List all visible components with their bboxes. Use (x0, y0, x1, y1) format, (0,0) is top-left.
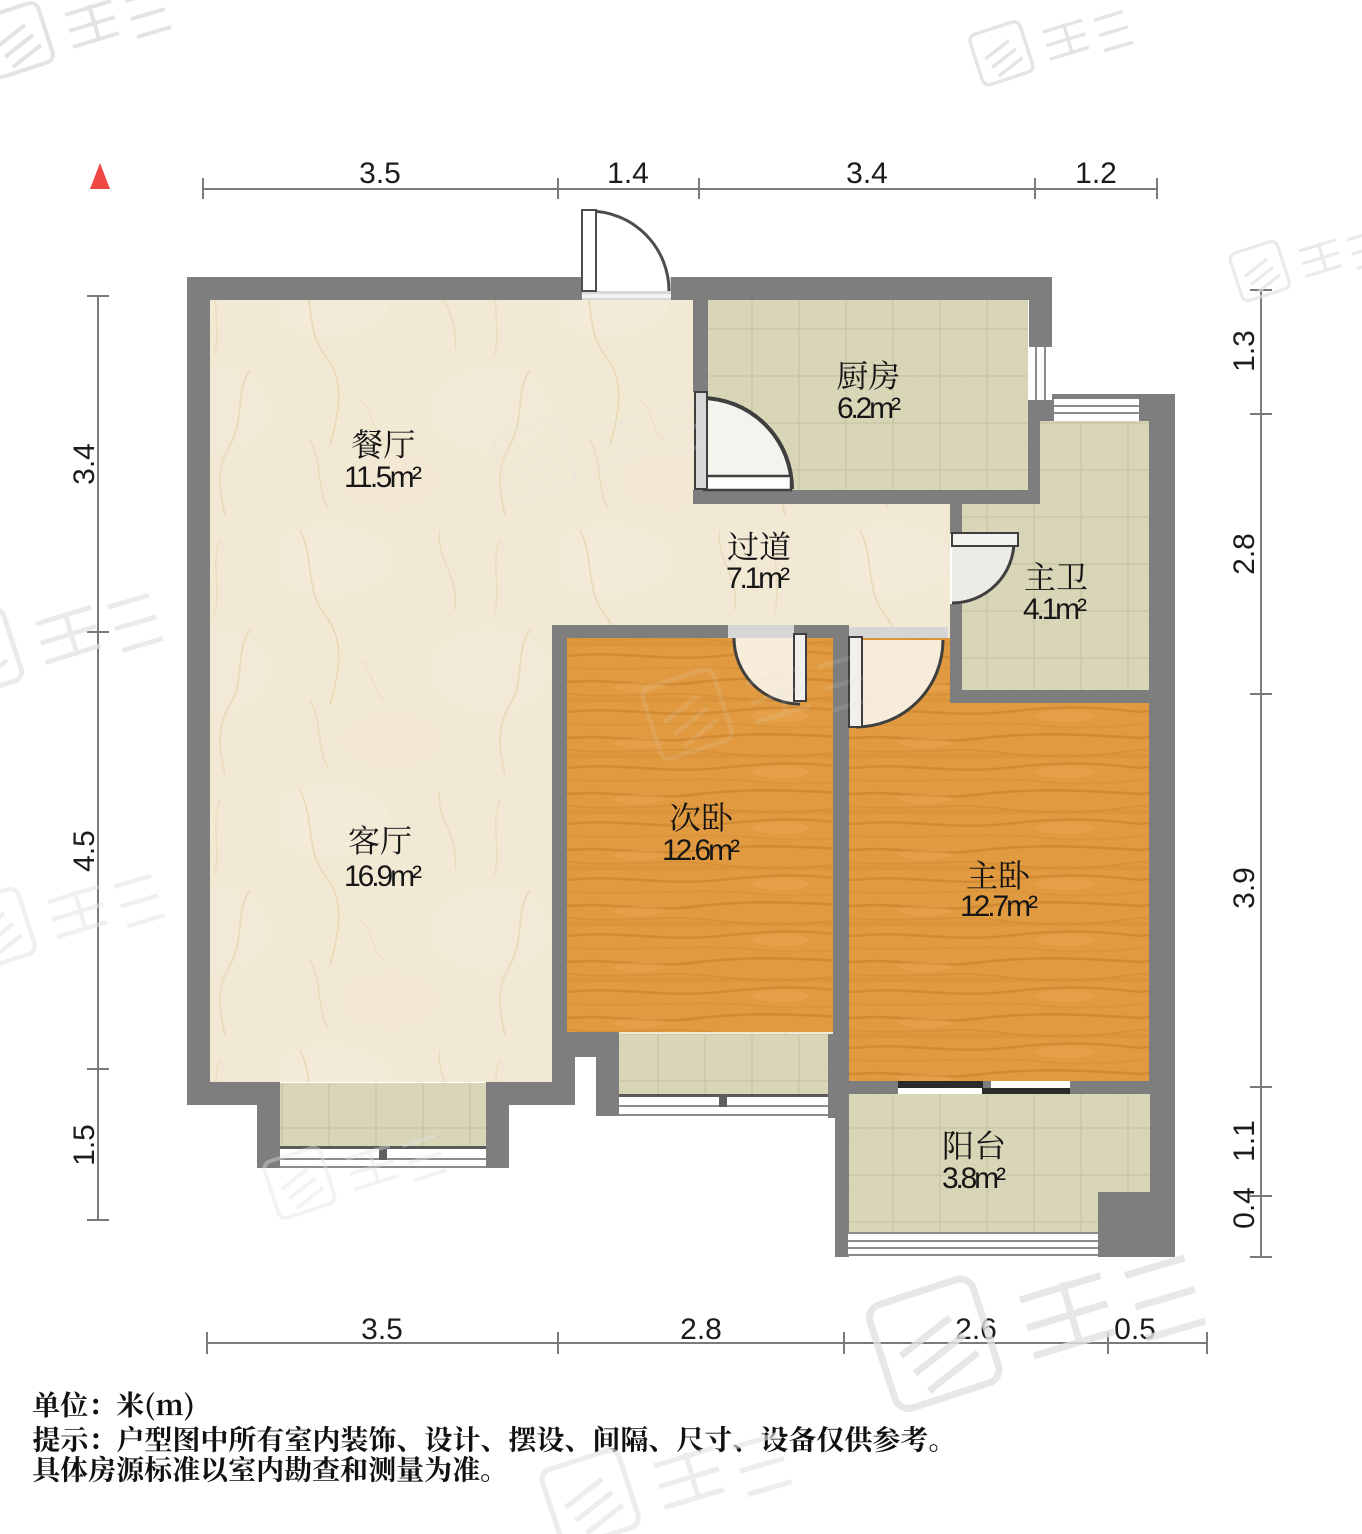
svg-text:3.5: 3.5 (359, 157, 401, 190)
svg-text:2.8: 2.8 (1228, 533, 1261, 575)
svg-text:7.1m²: 7.1m² (726, 562, 790, 595)
svg-text:1.2: 1.2 (1075, 157, 1117, 190)
svg-text:1.3: 1.3 (1228, 330, 1261, 372)
svg-text:0.4: 0.4 (1228, 1187, 1261, 1229)
svg-text:3.8m²: 3.8m² (942, 1162, 1006, 1195)
svg-text:4.5: 4.5 (68, 830, 101, 872)
svg-text:11.5m²: 11.5m² (344, 461, 422, 494)
svg-text:16.9m²: 16.9m² (344, 860, 422, 893)
svg-text:1.1: 1.1 (1228, 1120, 1261, 1162)
svg-text:4.1m²: 4.1m² (1023, 593, 1087, 626)
svg-text:12.7m²: 12.7m² (960, 890, 1038, 923)
svg-text:3.4: 3.4 (846, 157, 888, 190)
svg-text:3.9: 3.9 (1228, 867, 1261, 909)
svg-text:6.2m²: 6.2m² (837, 392, 901, 425)
svg-text:1.5: 1.5 (68, 1124, 101, 1166)
svg-text:1.4: 1.4 (607, 157, 649, 190)
svg-text:3.5: 3.5 (361, 1313, 403, 1346)
svg-text:12.6m²: 12.6m² (662, 834, 740, 867)
svg-text:3.4: 3.4 (68, 443, 101, 485)
svg-text:2.8: 2.8 (680, 1313, 722, 1346)
